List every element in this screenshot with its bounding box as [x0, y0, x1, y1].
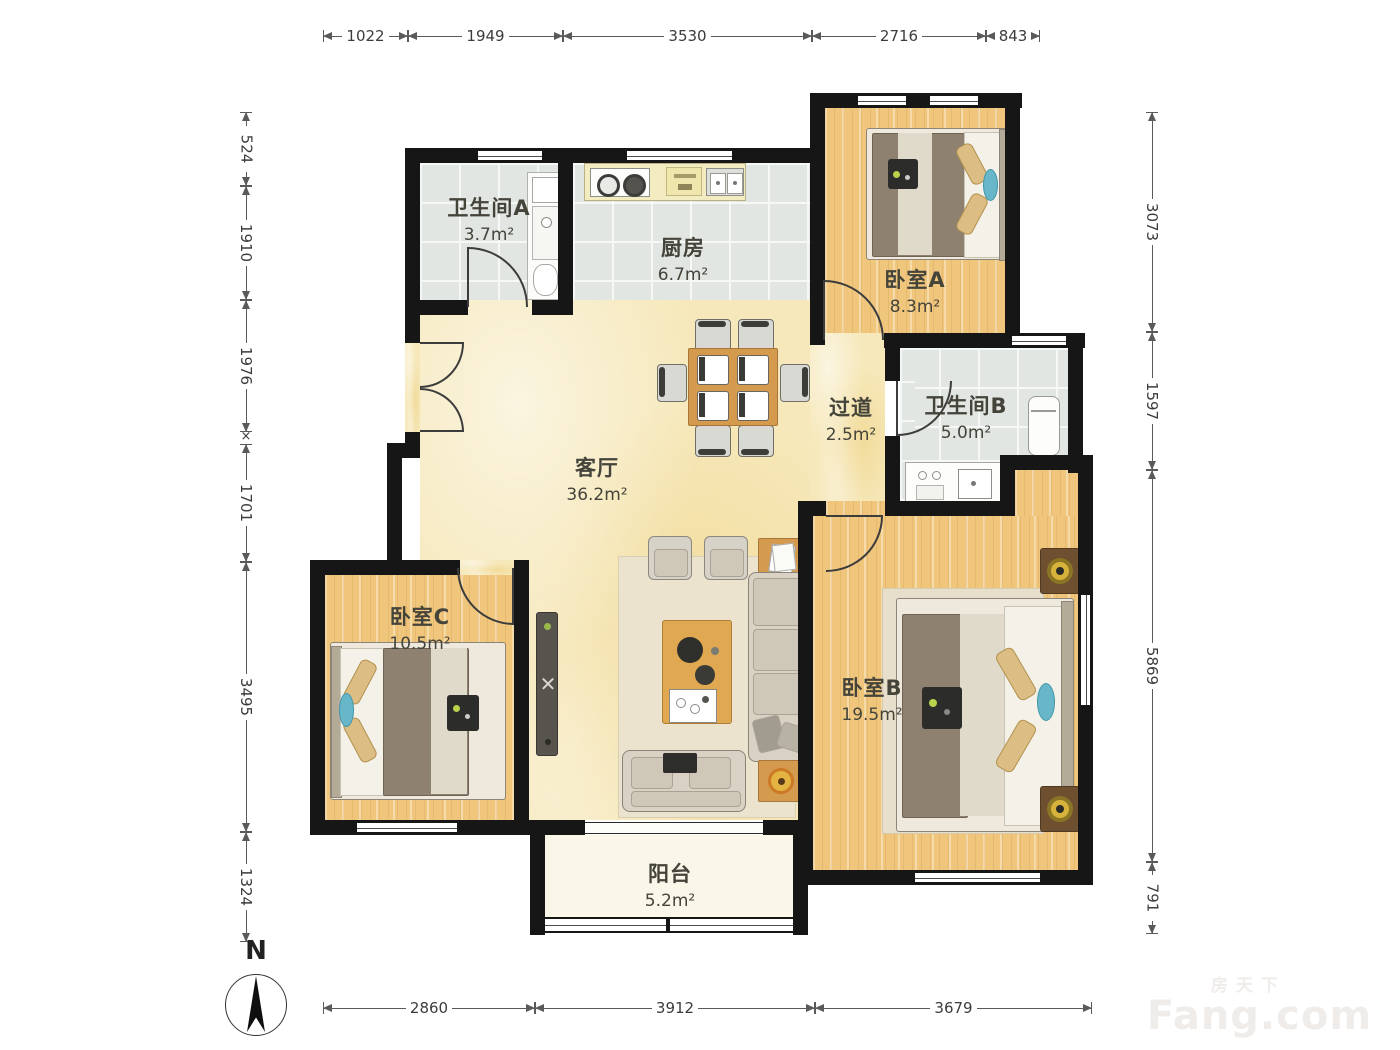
dim-value: 843 — [995, 27, 1032, 45]
chair-back — [659, 367, 665, 397]
dining-table — [688, 348, 778, 426]
window-bedroom-c — [357, 821, 457, 834]
chair-back — [802, 367, 808, 397]
window-bathroom-b — [1012, 334, 1066, 347]
dining-chair-top-2 — [738, 319, 774, 351]
bed-a — [866, 128, 1008, 260]
dim-bottom-3679: 3679 — [815, 1000, 1092, 1016]
dim-value: 1701 — [237, 484, 255, 522]
dim-value: 1976 — [237, 347, 255, 385]
dim-value: 1022 — [342, 27, 388, 45]
balcony-rail-mullion — [666, 917, 670, 933]
label-bathroom-a: 卫生间A 3.7m² — [447, 192, 530, 245]
bed-c-accent — [339, 693, 354, 727]
door-leaf-entry-upper — [420, 342, 464, 344]
placemat — [697, 391, 729, 421]
wall-bedroom-b-top-right — [886, 501, 1014, 516]
dim-bottom-2860: 2860 — [323, 1000, 535, 1016]
sink-drain-left — [716, 181, 720, 185]
room-name: 厨房 — [658, 232, 708, 262]
dim-value: 3530 — [664, 27, 710, 45]
door-leaf-bedroom-b — [826, 515, 883, 517]
sink-drain-right — [733, 181, 737, 185]
tray-dot-white — [465, 714, 470, 719]
bed-b-runner — [960, 614, 1004, 816]
wall-bathroom-b-right — [1068, 333, 1083, 473]
placemat — [737, 391, 769, 421]
bedroom-b-strip-floor — [1015, 470, 1078, 516]
window-bedroom-b-south — [915, 871, 1040, 884]
wall-hall-bath-lower — [885, 436, 900, 516]
dim-value: 2716 — [876, 27, 922, 45]
wall-bedroom-c-left — [310, 560, 325, 835]
wall-bedroom-a-bottom — [884, 333, 1020, 348]
wall-bath-a-kitchen — [558, 148, 573, 315]
bathroom-b-vanity — [905, 462, 1003, 504]
placemat-utensil — [699, 357, 705, 381]
room-name: 卫生间B — [924, 390, 1007, 420]
tray-dot-green — [893, 171, 900, 178]
wall-bedroom-a-top — [810, 93, 1022, 108]
label-bedroom-b: 卧室B 19.5m² — [841, 672, 902, 725]
dim-value: 3073 — [1143, 203, 1161, 241]
compass: N — [216, 936, 296, 1044]
threshold-balcony — [585, 822, 763, 834]
door-leaf-bathroom-b — [896, 381, 898, 436]
sofa-front-edge — [631, 791, 741, 807]
chair-back — [698, 449, 726, 455]
tray-dot-green — [929, 699, 937, 707]
bed-a-runner — [898, 133, 932, 255]
bedroom-b-door-floor — [826, 501, 886, 516]
label-living-room: 客厅 36.2m² — [566, 452, 627, 505]
label-bedroom-a: 卧室A 8.3m² — [884, 264, 945, 317]
wall-north — [408, 148, 815, 163]
vanity-tray — [916, 485, 944, 500]
dim-right-1597: 1597 — [1144, 332, 1160, 470]
armchair-1 — [648, 536, 692, 580]
label-bedroom-c: 卧室C 10.5m² — [389, 601, 450, 654]
nightstand-bottom — [1040, 786, 1080, 832]
range-hood — [666, 167, 702, 196]
dim-value: 2860 — [406, 999, 452, 1017]
basin-drain — [541, 217, 552, 228]
room-name: 客厅 — [566, 452, 627, 482]
bed-c — [330, 642, 506, 800]
floorplan-canvas: ✕ — [0, 0, 1400, 1050]
compass-n-label: N — [216, 936, 296, 966]
vanity-drain — [971, 481, 976, 486]
vanity-counter — [532, 206, 559, 260]
wall-bath-a-bottom-right — [532, 300, 573, 315]
dim-top-843: 843 — [986, 28, 1040, 44]
door-leaf-entry-lower — [420, 430, 464, 432]
chair-back — [698, 321, 726, 327]
room-area: 6.7m² — [658, 265, 708, 285]
dim-top-2716: 2716 — [812, 28, 986, 44]
room-area: 2.5m² — [826, 425, 876, 445]
window-bedroom-b-east — [1079, 595, 1092, 705]
dining-chair-left — [657, 364, 687, 402]
tray-dot-white — [905, 175, 910, 180]
entry-door-floor — [405, 343, 420, 432]
washbasin — [532, 177, 559, 203]
armchair-cushion — [710, 549, 744, 577]
toilet-b — [1028, 396, 1060, 456]
door-leaf-bedroom-a — [823, 280, 825, 340]
room-area: 5.0m² — [924, 423, 1007, 443]
sink-basin-right — [727, 173, 743, 194]
dim-left-1701: 1701 — [238, 444, 254, 562]
wall-bedroom-c-top — [310, 560, 460, 575]
fruit-plate-center — [778, 778, 785, 785]
stove-burner-left — [597, 174, 620, 197]
wall-hall-bath-upper — [885, 333, 900, 381]
dim-value: 1949 — [462, 27, 508, 45]
room-area: 3.7m² — [447, 225, 530, 245]
dining-chair-top-1 — [695, 319, 731, 351]
stove-burner-right — [623, 174, 646, 197]
window-bedroom-a-1 — [858, 94, 906, 107]
kitchen-sink — [706, 168, 744, 196]
dim-value: 791 — [1143, 884, 1161, 913]
wall-bathroom-b-step — [1010, 455, 1083, 470]
dim-right-3073: 3073 — [1144, 112, 1160, 332]
label-bathroom-b: 卫生间B 5.0m² — [924, 390, 1007, 443]
bed-a-accent — [983, 169, 998, 201]
lamp — [1047, 796, 1073, 822]
room-area: 10.5m² — [389, 634, 450, 654]
wall-balcony-stub-left — [545, 820, 585, 835]
wall-west-lower — [387, 443, 402, 575]
tray-cup — [676, 698, 686, 708]
dim-top-3530: 3530 — [563, 28, 812, 44]
dim-value: 1324 — [237, 868, 255, 906]
room-area: 36.2m² — [566, 485, 627, 505]
room-name: 阳台 — [645, 858, 695, 888]
wall-bedroom-c-right — [514, 560, 529, 835]
dim-bottom-3912: 3912 — [535, 1000, 815, 1016]
wall-bedroom-a-right — [1005, 93, 1020, 348]
bed-b-accent — [1037, 683, 1055, 721]
label-kitchen: 厨房 6.7m² — [658, 232, 708, 285]
decor-bowl-small — [695, 665, 715, 685]
dim-value: 3912 — [652, 999, 698, 1017]
armchair-cushion — [654, 549, 688, 577]
door-leaf-bedroom-c — [512, 568, 514, 625]
room-name: 卧室B — [841, 672, 902, 702]
tray-cup — [690, 704, 700, 714]
vanity-sink — [958, 469, 992, 499]
chair-back — [741, 321, 769, 327]
hood-control — [678, 184, 692, 190]
dim-value: 5869 — [1143, 647, 1161, 685]
stove — [590, 168, 650, 197]
hood-vent — [674, 174, 696, 178]
bed-a-tray — [888, 159, 918, 189]
toilet-a — [533, 264, 558, 296]
door-leaf-bathroom-a — [467, 247, 469, 307]
table-tray — [669, 689, 717, 723]
dim-left-1976: 1976 — [238, 300, 254, 432]
placemat-utensil — [739, 357, 745, 381]
tray-item — [702, 696, 709, 703]
dim-right-5869: 5869 — [1144, 470, 1160, 862]
wall-balcony-cap-left — [530, 915, 545, 935]
dining-chair-bottom-2 — [738, 425, 774, 457]
dim-value: 524 — [237, 135, 255, 164]
room-name: 卧室A — [884, 264, 945, 294]
label-hallway: 过道 2.5m² — [826, 392, 876, 445]
label-balcony: 阳台 5.2m² — [645, 858, 695, 911]
dining-chair-bottom-1 — [695, 425, 731, 457]
papers — [771, 543, 796, 572]
decor-bowl-large — [677, 637, 703, 663]
placemat — [697, 355, 729, 385]
placemat — [737, 355, 769, 385]
dim-value: 3679 — [930, 999, 976, 1017]
placemat-utensil — [739, 393, 745, 417]
tv-indicator-bottom — [545, 739, 551, 745]
dim-right-791: 791 — [1144, 862, 1160, 934]
room-area: 8.3m² — [884, 297, 945, 317]
dim-top-1022: 1022 — [323, 28, 408, 44]
room-name: 卫生间A — [447, 192, 530, 222]
armchair-2 — [704, 536, 748, 580]
bed-b-tray — [922, 687, 962, 729]
tray-dot-green — [453, 705, 460, 712]
toilet-b-tank-line — [1031, 410, 1056, 412]
vanity-faucet-1 — [918, 471, 927, 480]
dim-value: 3495 — [237, 678, 255, 716]
dim-value: 1597 — [1143, 382, 1161, 420]
wall-bedroom-b-left — [798, 501, 813, 885]
room-name: 卧室C — [389, 601, 450, 631]
placemat-utensil — [699, 393, 705, 417]
tv-indicator-top — [544, 623, 551, 630]
wall-balcony-cap-right — [793, 915, 808, 935]
dim-left-1324: 1324 — [238, 832, 254, 942]
dim-value: 1910 — [237, 224, 255, 262]
room-area: 5.2m² — [645, 891, 695, 911]
lamp — [1047, 558, 1073, 584]
dim-left-1910: 1910 — [238, 186, 254, 300]
tv-unit: ✕ — [536, 612, 558, 756]
decor-dot — [711, 647, 719, 655]
window-bedroom-a-2 — [930, 94, 978, 107]
tv-stand-x: ✕ — [537, 671, 559, 697]
dim-left-524: 524 — [238, 112, 254, 186]
watermark-en: Fang.com — [1147, 996, 1372, 1036]
dining-chair-right — [780, 364, 810, 402]
nightstand-top — [1040, 548, 1080, 594]
bed-c-tray — [447, 695, 479, 731]
coffee-table — [662, 620, 732, 724]
chair-back — [741, 449, 769, 455]
window-bathroom-a — [478, 149, 542, 162]
dim-x-separator: × — [238, 430, 254, 444]
wall-west-upper — [405, 148, 420, 343]
watermark: 房天下 Fang.com — [1147, 971, 1372, 1036]
sofa-small — [622, 750, 746, 812]
vanity-faucet-2 — [932, 471, 941, 480]
tray-dot-grey — [944, 709, 950, 715]
dim-left-3495: 3495 — [238, 562, 254, 832]
room-name: 过道 — [826, 392, 876, 422]
dim-top-1949: 1949 — [408, 28, 563, 44]
sink-basin-left — [710, 173, 726, 194]
laptop — [663, 753, 697, 773]
room-area: 19.5m² — [841, 705, 902, 725]
window-kitchen — [627, 149, 732, 162]
